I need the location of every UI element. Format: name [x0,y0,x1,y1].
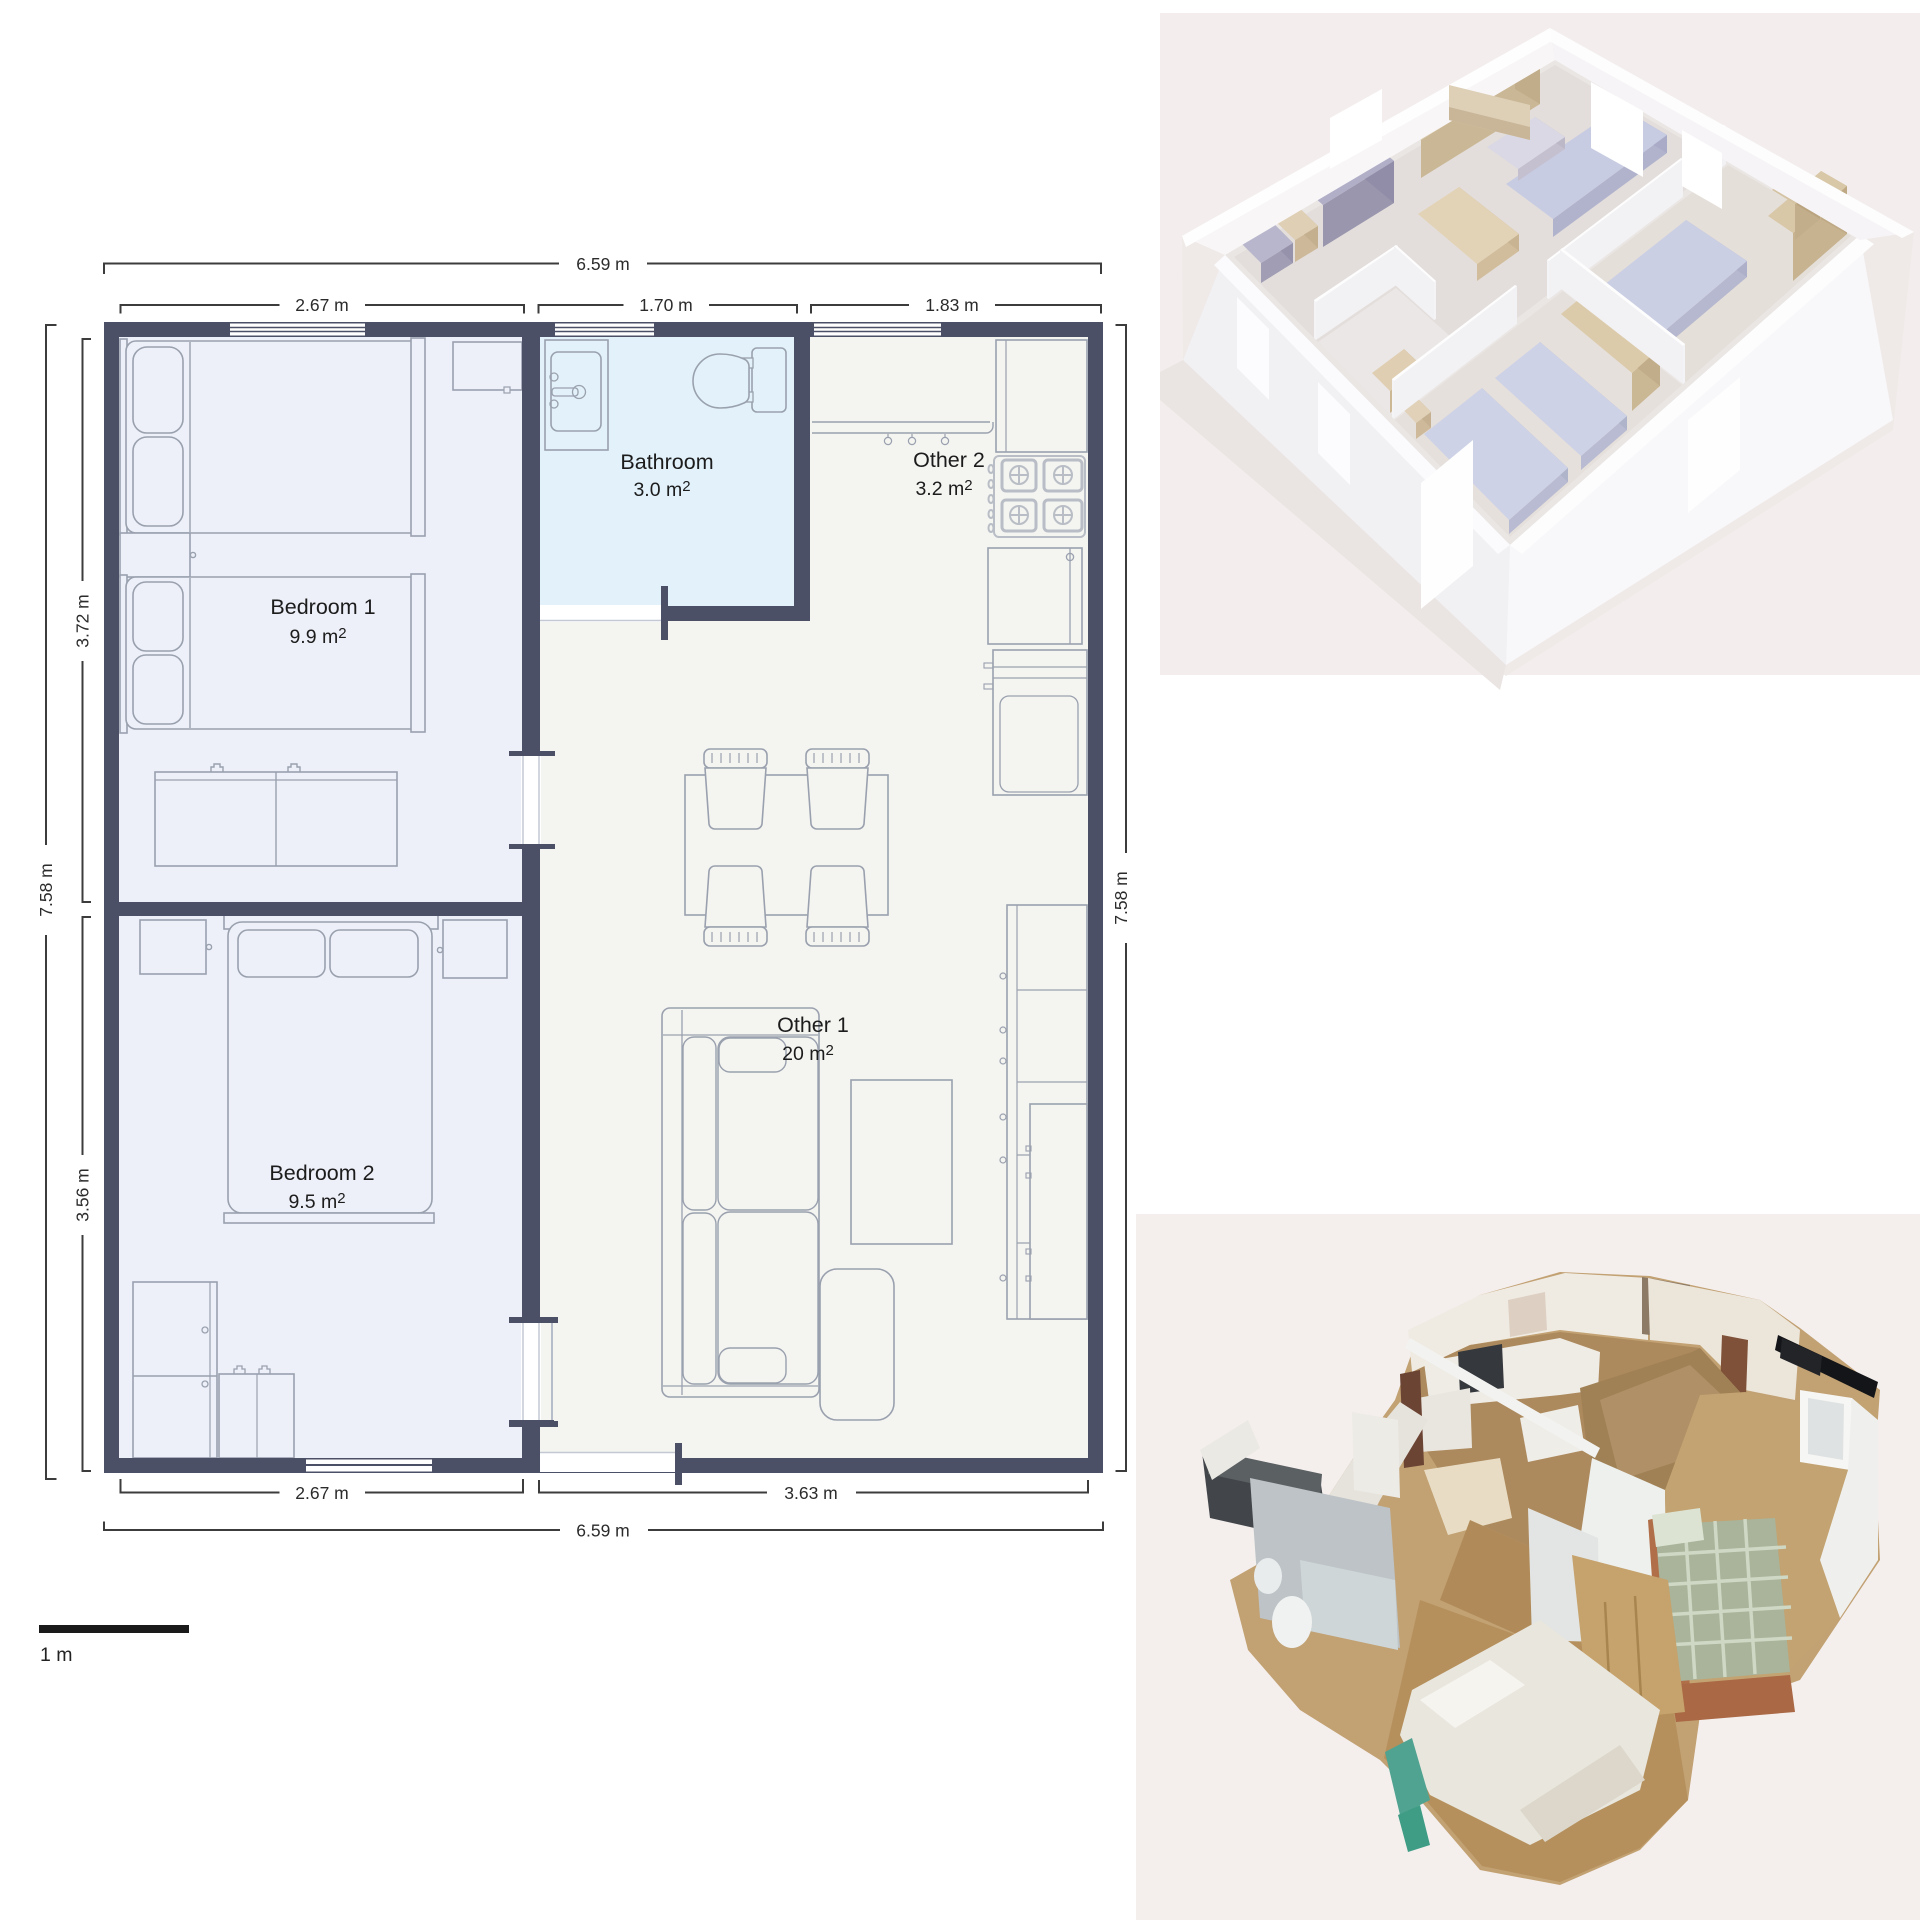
svg-text:9.5 m2: 9.5 m2 [288,1190,345,1213]
svg-text:Other 2: Other 2 [913,448,985,472]
svg-text:3.56 m: 3.56 m [73,1168,93,1222]
svg-text:9.9 m2: 9.9 m2 [289,625,346,648]
svg-text:1.83 m: 1.83 m [925,295,979,315]
svg-text:Other 1: Other 1 [777,1013,849,1037]
svg-text:7.58 m: 7.58 m [1111,871,1131,925]
svg-text:Bedroom 1: Bedroom 1 [270,595,375,619]
svg-text:3.0 m2: 3.0 m2 [633,478,690,501]
svg-text:6.59 m: 6.59 m [576,254,630,274]
svg-text:7.58 m: 7.58 m [36,863,56,917]
svg-text:1 m: 1 m [40,1644,73,1666]
svg-text:3.2 m2: 3.2 m2 [915,477,972,500]
svg-text:2.67 m: 2.67 m [295,295,349,315]
svg-text:Bathroom: Bathroom [620,450,713,474]
svg-text:6.59 m: 6.59 m [576,1521,630,1541]
svg-text:1.70 m: 1.70 m [639,295,693,315]
svg-text:2.67 m: 2.67 m [295,1483,349,1503]
svg-text:3.72 m: 3.72 m [73,594,93,648]
svg-text:3.63 m: 3.63 m [784,1483,838,1503]
svg-text:Bedroom 2: Bedroom 2 [269,1161,374,1185]
